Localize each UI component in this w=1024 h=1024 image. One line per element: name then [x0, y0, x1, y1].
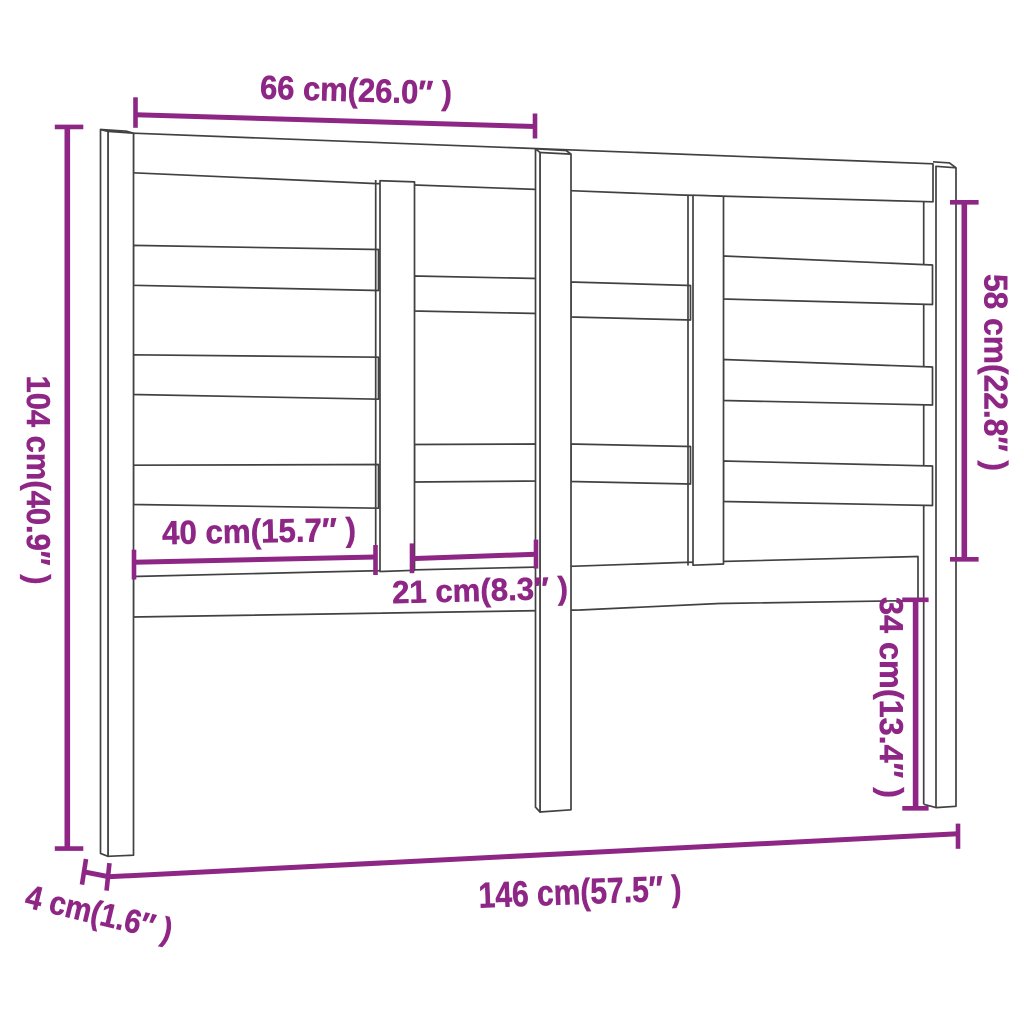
svg-text:58 cm(22.8″ ): 58 cm(22.8″ ) — [978, 274, 1015, 471]
svg-text:21 cm(8.3″ ): 21 cm(8.3″ ) — [392, 570, 569, 611]
svg-text:104 cm(40.9″ ): 104 cm(40.9″ ) — [20, 376, 57, 585]
svg-text:40 cm(15.7″ ): 40 cm(15.7″ ) — [162, 512, 357, 552]
svg-text:34 cm(13.4″ ): 34 cm(13.4″ ) — [873, 597, 910, 798]
svg-text:66 cm(26.0″ ): 66 cm(26.0″ ) — [259, 69, 452, 112]
svg-text:146 cm(57.5″ ): 146 cm(57.5″ ) — [478, 867, 682, 915]
